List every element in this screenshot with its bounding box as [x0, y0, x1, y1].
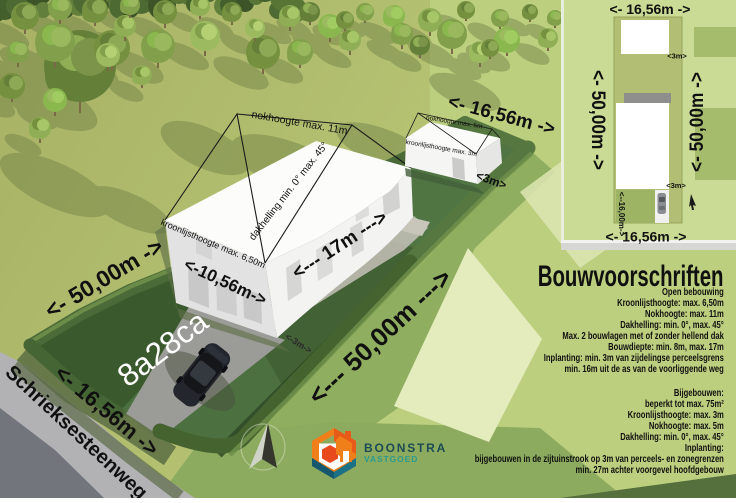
- svg-text:Nokhoogte: max. 5m: Nokhoogte: max. 5m: [649, 420, 724, 431]
- svg-text:Max. 2 bouwlagen met of zonder: Max. 2 bouwlagen met of zonder hellend d…: [562, 330, 724, 341]
- svg-text:Bijgebouwen:: Bijgebouwen:: [674, 387, 724, 398]
- svg-text:<3m>: <3m>: [666, 181, 686, 190]
- svg-text:min. 27m achter voorgevel hoof: min. 27m achter voorgevel hoofdgebouw: [576, 464, 724, 475]
- svg-text:Kroonlijsthoogte: max. 6,50m: Kroonlijsthoogte: max. 6,50m: [617, 297, 724, 308]
- svg-text:Nokhoogte: max. 11m: Nokhoogte: max. 11m: [645, 308, 724, 319]
- svg-text:<- 16,56m ->: <- 16,56m ->: [610, 1, 691, 17]
- svg-text:<- 50,00m ->: <- 50,00m ->: [687, 72, 708, 172]
- svg-text:beperkt tot max. 75m²: beperkt tot max. 75m²: [645, 398, 724, 409]
- svg-text:<3m>: <3m>: [667, 52, 687, 61]
- svg-text:Open bebouwing: Open bebouwing: [662, 286, 724, 297]
- svg-text:Dakhelling: min. 0°, max. 45°: Dakhelling: min. 0°, max. 45°: [620, 431, 724, 442]
- svg-text:VASTGOED: VASTGOED: [364, 454, 418, 464]
- svg-text:BOONSTRA: BOONSTRA: [364, 441, 447, 455]
- svg-text:Dakhelling: min. 0°, max. 45°: Dakhelling: min. 0°, max. 45°: [620, 319, 724, 330]
- svg-text:<- 16,56m ->: <- 16,56m ->: [606, 229, 687, 245]
- svg-text:<- 50,00m ->: <- 50,00m ->: [587, 70, 608, 170]
- svg-text:Inplanting:: Inplanting:: [685, 442, 724, 453]
- svg-text:min. 16m uit de as van de voor: min. 16m uit de as van de voorliggende w…: [565, 363, 724, 374]
- svg-text:Kroonlijsthoogte: max. 3m: Kroonlijsthoogte: max. 3m: [628, 409, 724, 420]
- svg-text:Inplanting: min. 3m van zijdel: Inplanting: min. 3m van zijdelingse perc…: [544, 352, 724, 363]
- svg-text:Bouwdiepte: min. 8m, max. 17m: Bouwdiepte: min. 8m, max. 17m: [608, 341, 724, 352]
- svg-text:bijgebouwen in de zijtuinstroo: bijgebouwen in de zijtuinstrook op 3m va…: [475, 453, 724, 464]
